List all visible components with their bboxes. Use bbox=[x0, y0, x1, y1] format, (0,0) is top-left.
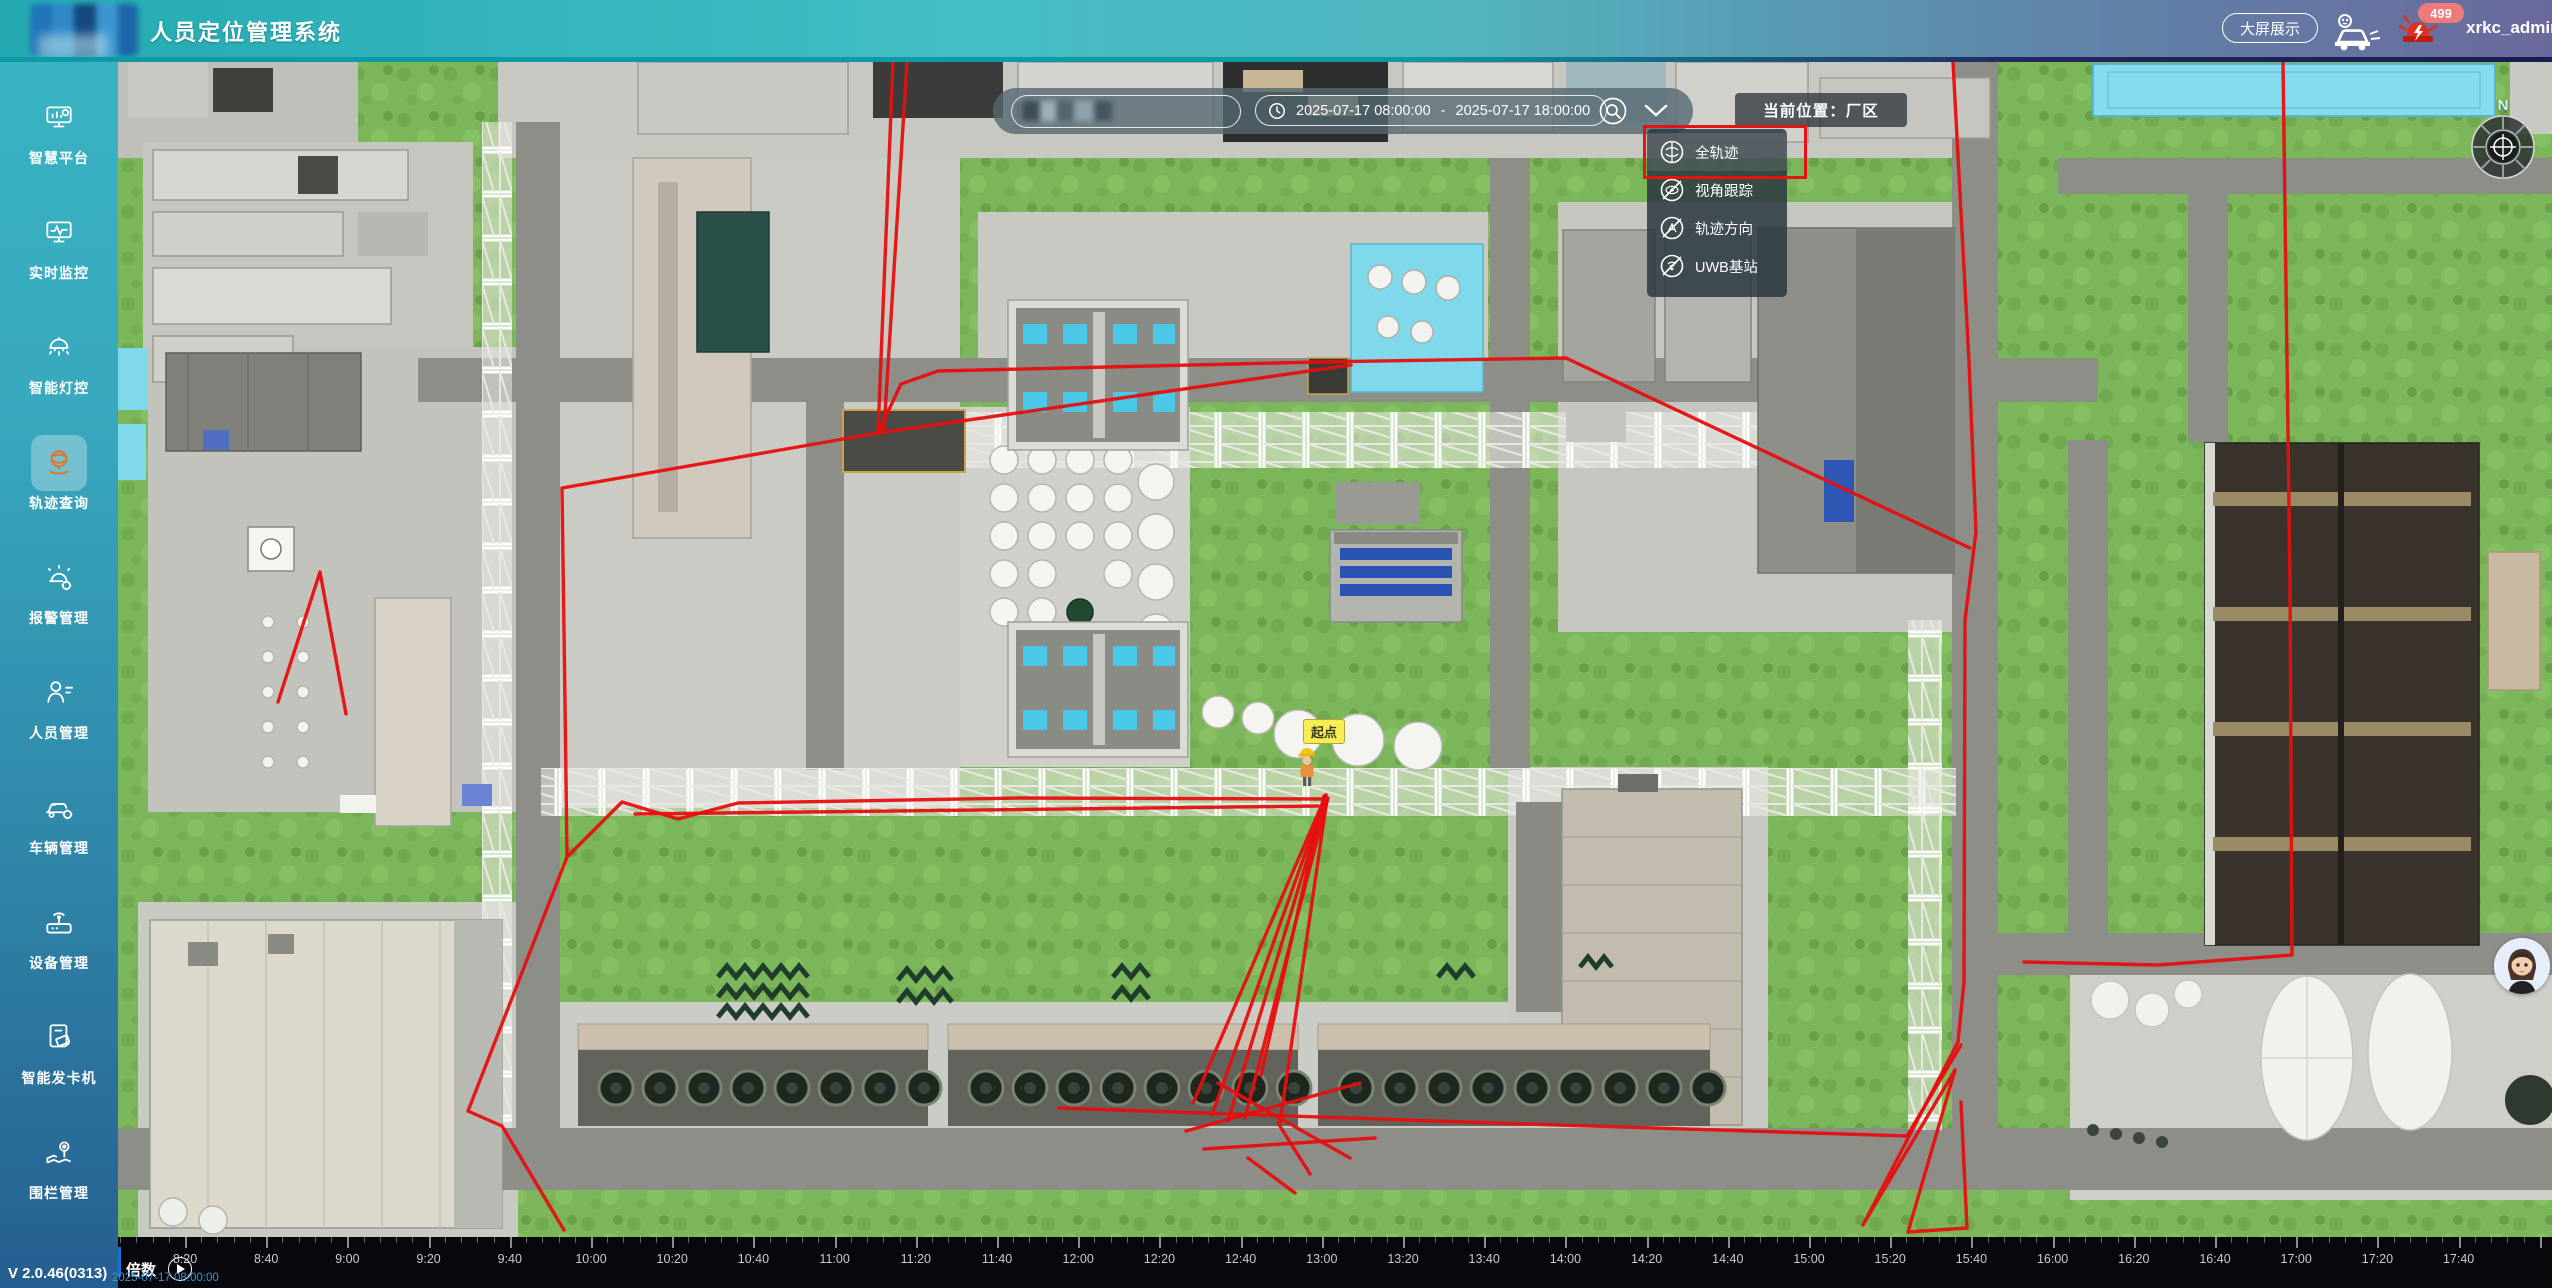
sidebar-item-alarm-management[interactable]: 报警管理 bbox=[0, 550, 118, 650]
timeline-tick bbox=[120, 1237, 121, 1243]
person-icon bbox=[31, 665, 87, 721]
timeline-tick bbox=[2215, 1237, 2217, 1248]
timeline-tick bbox=[2280, 1237, 2281, 1243]
start-point-marker[interactable]: 起点 bbox=[1294, 719, 1354, 789]
sidebar-item-realtime-monitor[interactable]: 实时监控 bbox=[0, 205, 118, 305]
search-input[interactable] bbox=[1011, 95, 1241, 128]
sidebar-item-smart-lighting[interactable]: 智能灯控 bbox=[0, 320, 118, 420]
timeline-tick bbox=[2199, 1237, 2200, 1243]
timeline-tick bbox=[1939, 1237, 1940, 1243]
timeline-tick bbox=[1435, 1237, 1436, 1243]
sidebar-item-device-management[interactable]: 设备管理 bbox=[0, 895, 118, 995]
timeline-tick bbox=[1371, 1237, 1372, 1243]
timeline-tick bbox=[2150, 1237, 2151, 1243]
timeline-label: 9:20 bbox=[416, 1252, 440, 1266]
timeline-tick bbox=[2004, 1237, 2005, 1243]
sidebar-item-label: 实时监控 bbox=[29, 263, 89, 283]
timeline-tick bbox=[1614, 1237, 1615, 1243]
timeline-tick bbox=[2345, 1237, 2346, 1243]
timeline-tick bbox=[1663, 1237, 1664, 1243]
sidebar-item-card-dispenser[interactable]: 智能发卡机 bbox=[0, 1010, 118, 1110]
timeline-tick bbox=[640, 1237, 641, 1243]
timeline-tick bbox=[461, 1237, 462, 1243]
timeline-tick bbox=[2312, 1237, 2313, 1243]
timeline-tick bbox=[1208, 1237, 1209, 1243]
timeline-tick bbox=[347, 1237, 349, 1248]
timeline-tick bbox=[1809, 1237, 1811, 1248]
timeline-tick bbox=[1760, 1237, 1761, 1243]
timeline-tick bbox=[2069, 1237, 2070, 1243]
timeline-tick bbox=[1955, 1237, 1956, 1243]
sidebar-item-track-query[interactable]: 轨迹查询 bbox=[0, 435, 118, 535]
timeline-label: 17:20 bbox=[2362, 1252, 2393, 1266]
timeline-tick bbox=[721, 1237, 722, 1243]
timeline-tick bbox=[1419, 1237, 1420, 1243]
timeline-tick bbox=[1906, 1237, 1907, 1243]
timeline-tick bbox=[900, 1237, 901, 1243]
timeline-tick bbox=[299, 1237, 300, 1243]
timeline-tick bbox=[1387, 1237, 1388, 1243]
timeline-label: 12:20 bbox=[1144, 1252, 1175, 1266]
header-bar: 人员定位管理系统 大屏展示 499 xrkc_admin bbox=[0, 0, 2552, 62]
timeline-tick bbox=[185, 1237, 187, 1248]
timeline-tick bbox=[1971, 1237, 1973, 1248]
timeline-tick bbox=[2247, 1237, 2248, 1243]
clock-icon bbox=[1268, 102, 1286, 120]
sidebar-item-fence-management[interactable]: 围栏管理 bbox=[0, 1125, 118, 1225]
car-gear-icon bbox=[31, 780, 87, 836]
timeline-tick bbox=[1111, 1237, 1112, 1243]
timeline-tick bbox=[477, 1237, 478, 1243]
timeline-tick bbox=[2231, 1237, 2232, 1243]
date-range-picker[interactable]: 2025-07-17 08:00:00 - 2025-07-17 18:00:0… bbox=[1255, 95, 1607, 126]
timeline-tick bbox=[445, 1237, 446, 1243]
timeline-tick bbox=[1484, 1237, 1486, 1248]
layer-dropdown-menu: 全轨迹 视角跟踪 轨迹方向 bbox=[1647, 129, 1787, 297]
timeline-tick bbox=[932, 1237, 933, 1243]
timeline-tick bbox=[786, 1237, 787, 1243]
timeline-tick bbox=[1029, 1237, 1030, 1243]
timeline-label: 8:40 bbox=[254, 1252, 278, 1266]
timeline-tick bbox=[1582, 1237, 1583, 1243]
date-start-value: 2025-07-17 08:00:00 bbox=[1296, 103, 1431, 119]
timeline-tick bbox=[802, 1237, 803, 1243]
timeline-tick bbox=[1858, 1237, 1859, 1243]
sidebar-item-vehicle-management[interactable]: 车辆管理 bbox=[0, 780, 118, 880]
timeline-label: 12:00 bbox=[1063, 1252, 1094, 1266]
timeline-label: 13:20 bbox=[1387, 1252, 1418, 1266]
timeline-tick bbox=[1094, 1237, 1095, 1243]
alarm-icon bbox=[31, 550, 87, 606]
timeline-tick bbox=[965, 1237, 966, 1243]
version-label: V 2.0.46(0313) bbox=[8, 1265, 107, 1282]
timeline-tick bbox=[1712, 1237, 1713, 1243]
timeline-label: 12:40 bbox=[1225, 1252, 1256, 1266]
timeline-tick bbox=[2507, 1237, 2508, 1243]
timeline-tick bbox=[672, 1237, 674, 1248]
timeline-tick bbox=[916, 1237, 918, 1248]
timeline-tick bbox=[623, 1237, 624, 1243]
timeline-tick bbox=[997, 1237, 999, 1248]
timeline-tick bbox=[2361, 1237, 2362, 1243]
app-window: 人员定位管理系统 大屏展示 499 xrkc_admin bbox=[0, 0, 2552, 1288]
timeline-tick bbox=[575, 1237, 576, 1243]
timeline-label: 13:40 bbox=[1469, 1252, 1500, 1266]
timeline-tick bbox=[2426, 1237, 2427, 1243]
sidebar-item-label: 车辆管理 bbox=[29, 838, 89, 858]
timeline-label: 16:00 bbox=[2037, 1252, 2068, 1266]
timeline-tick bbox=[1468, 1237, 1469, 1243]
timeline-label: 16:20 bbox=[2118, 1252, 2149, 1266]
map-toolbar: 2025-07-17 08:00:00 - 2025-07-17 18:00:0… bbox=[993, 88, 1693, 134]
timeline-tick bbox=[282, 1237, 283, 1243]
timeline-tick bbox=[1841, 1237, 1842, 1243]
timeline-tick bbox=[1127, 1237, 1128, 1243]
vehicle-monitor-icon[interactable] bbox=[2330, 12, 2382, 52]
timeline-tick bbox=[770, 1237, 771, 1243]
current-playback-time: 2025-07-17 08:00:00 bbox=[112, 1272, 219, 1284]
timeline-tick bbox=[1062, 1237, 1063, 1243]
timeline-label: 10:00 bbox=[575, 1252, 606, 1266]
timeline-tick bbox=[2410, 1237, 2411, 1243]
timeline-tick bbox=[2036, 1237, 2037, 1243]
timeline-tick bbox=[753, 1237, 755, 1248]
timeline-tick bbox=[412, 1237, 413, 1243]
start-point-label: 起点 bbox=[1303, 719, 1345, 744]
timeline-tick bbox=[1598, 1237, 1599, 1243]
timeline-tick bbox=[1403, 1237, 1405, 1248]
timeline-label: 14:20 bbox=[1631, 1252, 1662, 1266]
timeline-label: 9:00 bbox=[335, 1252, 359, 1266]
sidebar-item-label: 围栏管理 bbox=[29, 1183, 89, 1203]
timeline-label: 15:40 bbox=[1956, 1252, 1987, 1266]
smart-platform-icon bbox=[31, 90, 87, 146]
timeline-tick bbox=[396, 1237, 397, 1243]
timeline-label: 10:40 bbox=[738, 1252, 769, 1266]
menu-item-track-direction[interactable]: 轨迹方向 bbox=[1647, 209, 1787, 247]
timeline-tick bbox=[2394, 1237, 2395, 1243]
track-search-button[interactable] bbox=[1599, 97, 1627, 125]
timeline-tick bbox=[607, 1237, 608, 1243]
timeline-tick bbox=[380, 1237, 381, 1243]
timeline-tick bbox=[1192, 1237, 1193, 1243]
device-icon bbox=[31, 895, 87, 951]
timeline-tick bbox=[1565, 1237, 1567, 1248]
timeline-tick bbox=[1159, 1237, 1161, 1248]
timeline-tick bbox=[883, 1237, 884, 1243]
smart-lamp-icon bbox=[31, 320, 87, 376]
timeline-tick bbox=[510, 1237, 512, 1248]
sidebar-item-label: 人员管理 bbox=[29, 723, 89, 743]
timeline-label: 14:40 bbox=[1712, 1252, 1743, 1266]
date-separator: - bbox=[1441, 103, 1446, 119]
timeline-tick bbox=[1549, 1237, 1550, 1243]
sidebar-item-label: 设备管理 bbox=[29, 953, 89, 973]
timeline-tick bbox=[526, 1237, 527, 1243]
timeline-tick bbox=[1825, 1237, 1826, 1243]
card-machine-icon bbox=[31, 1010, 87, 1066]
timeline-tick bbox=[266, 1237, 268, 1248]
timeline-tick bbox=[1890, 1237, 1892, 1248]
timeline-tick bbox=[542, 1237, 543, 1243]
timeline-tick bbox=[136, 1237, 137, 1243]
timeline-tick bbox=[1143, 1237, 1144, 1243]
big-screen-button[interactable]: 大屏展示 bbox=[2222, 13, 2318, 43]
realtime-monitor-icon bbox=[31, 205, 87, 261]
timeline-label: 15:20 bbox=[1875, 1252, 1906, 1266]
menu-item-label: UWB基站 bbox=[1695, 256, 1758, 277]
timeline-tick bbox=[234, 1237, 235, 1243]
timeline-tick bbox=[2377, 1237, 2379, 1248]
compass-widget[interactable]: N bbox=[2470, 97, 2536, 213]
timeline-tick bbox=[1923, 1237, 1924, 1243]
track-direction-icon bbox=[1659, 215, 1685, 241]
timeline-tick bbox=[1679, 1237, 1680, 1243]
timeline-tick bbox=[559, 1237, 560, 1243]
timeline-tick bbox=[1224, 1237, 1225, 1243]
timeline-label: 13:00 bbox=[1306, 1252, 1337, 1266]
timeline-tick bbox=[688, 1237, 689, 1243]
timeline-tick bbox=[217, 1237, 218, 1243]
sidebar-item-label: 智慧平台 bbox=[29, 148, 89, 168]
timeline-tick bbox=[835, 1237, 837, 1248]
sidebar-nav: 智慧平台 实时监控 智能灯控 轨迹查询 bbox=[0, 62, 118, 1288]
timeline-tick bbox=[153, 1237, 154, 1243]
menu-item-label: 全轨迹 bbox=[1695, 142, 1739, 163]
timeline-tick bbox=[1322, 1237, 1324, 1248]
timeline-tick bbox=[1988, 1237, 1989, 1243]
timeline-label: 14:00 bbox=[1550, 1252, 1581, 1266]
sidebar-item-label: 智能灯控 bbox=[29, 378, 89, 398]
timeline-tick bbox=[1533, 1237, 1534, 1243]
timeline-tick bbox=[2329, 1237, 2330, 1243]
timeline-tick bbox=[201, 1237, 202, 1243]
timeline-tick bbox=[2183, 1237, 2184, 1243]
sidebar-item-label: 智能发卡机 bbox=[22, 1068, 97, 1088]
timeline-tick bbox=[315, 1237, 316, 1243]
timeline-tick bbox=[2134, 1237, 2136, 1248]
timeline-tick bbox=[364, 1237, 365, 1243]
timeline-tick bbox=[1500, 1237, 1501, 1243]
timeline-label: 10:20 bbox=[657, 1252, 688, 1266]
timeline-label: 11:00 bbox=[819, 1252, 849, 1266]
timeline-tick bbox=[1728, 1237, 1730, 1248]
timeline-tick bbox=[2020, 1237, 2021, 1243]
timeline-tick bbox=[2264, 1237, 2265, 1243]
timeline-label: 11:20 bbox=[901, 1252, 931, 1266]
timeline-tick bbox=[1078, 1237, 1080, 1248]
timeline-tick bbox=[2540, 1237, 2542, 1248]
timeline-tick bbox=[591, 1237, 593, 1248]
timeline-tick bbox=[1452, 1237, 1453, 1243]
timeline-tick bbox=[2442, 1237, 2443, 1243]
timeline-tick bbox=[1257, 1237, 1258, 1243]
notification-badge: 499 bbox=[2418, 3, 2464, 23]
timeline-tick bbox=[948, 1237, 949, 1243]
timeline-label: 17:00 bbox=[2281, 1252, 2312, 1266]
compass-dial bbox=[2470, 114, 2536, 180]
timeline-tick bbox=[981, 1237, 982, 1243]
menu-item-label: 轨迹方向 bbox=[1695, 218, 1753, 239]
sidebar-item-label: 轨迹查询 bbox=[29, 493, 89, 513]
timeline-bar[interactable]: 8:208:409:009:209:4010:0010:2010:4011:00… bbox=[118, 1237, 2552, 1288]
timeline-tick bbox=[737, 1237, 738, 1243]
menu-item-uwb-station[interactable]: UWB基站 bbox=[1647, 247, 1787, 285]
page-title: 人员定位管理系统 bbox=[150, 15, 342, 47]
timeline-tick bbox=[169, 1237, 170, 1243]
timeline-tick bbox=[429, 1237, 431, 1248]
timeline-tick bbox=[1354, 1237, 1355, 1243]
timeline-tick bbox=[494, 1237, 495, 1243]
timeline-tick bbox=[1793, 1237, 1794, 1243]
compass-north-label: N bbox=[2470, 97, 2536, 114]
timeline-tick bbox=[2491, 1237, 2492, 1243]
uwb-station-icon bbox=[1659, 253, 1685, 279]
timeline-label: 11:40 bbox=[982, 1252, 1012, 1266]
timeline-tick bbox=[1695, 1237, 1696, 1243]
timeline-tick bbox=[1046, 1237, 1047, 1243]
timeline-tick bbox=[1241, 1237, 1243, 1248]
timeline-tick bbox=[1176, 1237, 1177, 1243]
sidebar-item-label: 报警管理 bbox=[29, 608, 89, 628]
timeline-tick bbox=[1874, 1237, 1875, 1243]
timeline-label: 15:00 bbox=[1793, 1252, 1824, 1266]
timeline-tick bbox=[1289, 1237, 1290, 1243]
assistant-avatar[interactable] bbox=[2494, 938, 2550, 994]
timeline-tick bbox=[818, 1237, 819, 1243]
menu-item-view-tracking[interactable]: 视角跟踪 bbox=[1647, 171, 1787, 209]
timeline-tick bbox=[1647, 1237, 1649, 1248]
timeline-tick bbox=[1306, 1237, 1307, 1243]
timeline-label: 16:40 bbox=[2199, 1252, 2230, 1266]
timeline-tick bbox=[2296, 1237, 2298, 1248]
map-pin-icon bbox=[31, 1125, 87, 1181]
timeline-tick bbox=[2085, 1237, 2086, 1243]
timeline-tick bbox=[2475, 1237, 2476, 1243]
view-tracking-icon bbox=[1659, 177, 1685, 203]
timeline-tick bbox=[867, 1237, 868, 1243]
timeline-label: 17:40 bbox=[2443, 1252, 2474, 1266]
timeline-tick bbox=[331, 1237, 332, 1243]
timeline-tick bbox=[705, 1237, 706, 1243]
timeline-tick bbox=[1273, 1237, 1274, 1243]
timeline-tick bbox=[2053, 1237, 2055, 1248]
timeline-label: 9:40 bbox=[498, 1252, 522, 1266]
menu-item-full-track[interactable]: 全轨迹 bbox=[1647, 133, 1787, 171]
timeline-tick bbox=[656, 1237, 657, 1243]
timeline-tick bbox=[1777, 1237, 1778, 1243]
menu-item-label: 视角跟踪 bbox=[1695, 180, 1753, 201]
layers-dropdown-toggle[interactable] bbox=[1643, 102, 1669, 120]
company-logo-sub bbox=[38, 34, 108, 58]
full-track-icon bbox=[1659, 139, 1685, 165]
timeline-tick bbox=[851, 1237, 852, 1243]
sidebar-item-personnel-management[interactable]: 人员管理 bbox=[0, 665, 118, 765]
timeline-tick bbox=[2118, 1237, 2119, 1243]
worker-figure bbox=[1294, 745, 1320, 789]
timeline-tick bbox=[2524, 1237, 2525, 1243]
date-end-value: 2025-07-17 18:00:00 bbox=[1456, 103, 1591, 119]
timeline-tick bbox=[1517, 1237, 1518, 1243]
redacted-search-value bbox=[1022, 101, 1112, 121]
timeline-tick bbox=[2459, 1237, 2461, 1248]
timeline-tick bbox=[2166, 1237, 2167, 1243]
timeline-tick bbox=[1013, 1237, 1014, 1243]
map-canvas[interactable]: 起点 2025-07-17 08:00:00 - 2025-07-17 18 bbox=[118, 62, 2552, 1237]
track-query-icon bbox=[31, 435, 87, 491]
user-menu[interactable]: xrkc_admin ▼ bbox=[2466, 18, 2552, 38]
timeline-tick bbox=[2101, 1237, 2102, 1243]
username-label: xrkc_admin bbox=[2466, 18, 2552, 38]
timeline-tick bbox=[250, 1237, 251, 1243]
map-scene bbox=[118, 62, 2552, 1237]
timeline-tick bbox=[1630, 1237, 1631, 1243]
sidebar-item-smart-platform[interactable]: 智慧平台 bbox=[0, 90, 118, 190]
timeline-tick bbox=[1744, 1237, 1745, 1243]
current-location-label: 当前位置：厂区 bbox=[1735, 93, 1907, 127]
timeline-tick bbox=[1338, 1237, 1339, 1243]
